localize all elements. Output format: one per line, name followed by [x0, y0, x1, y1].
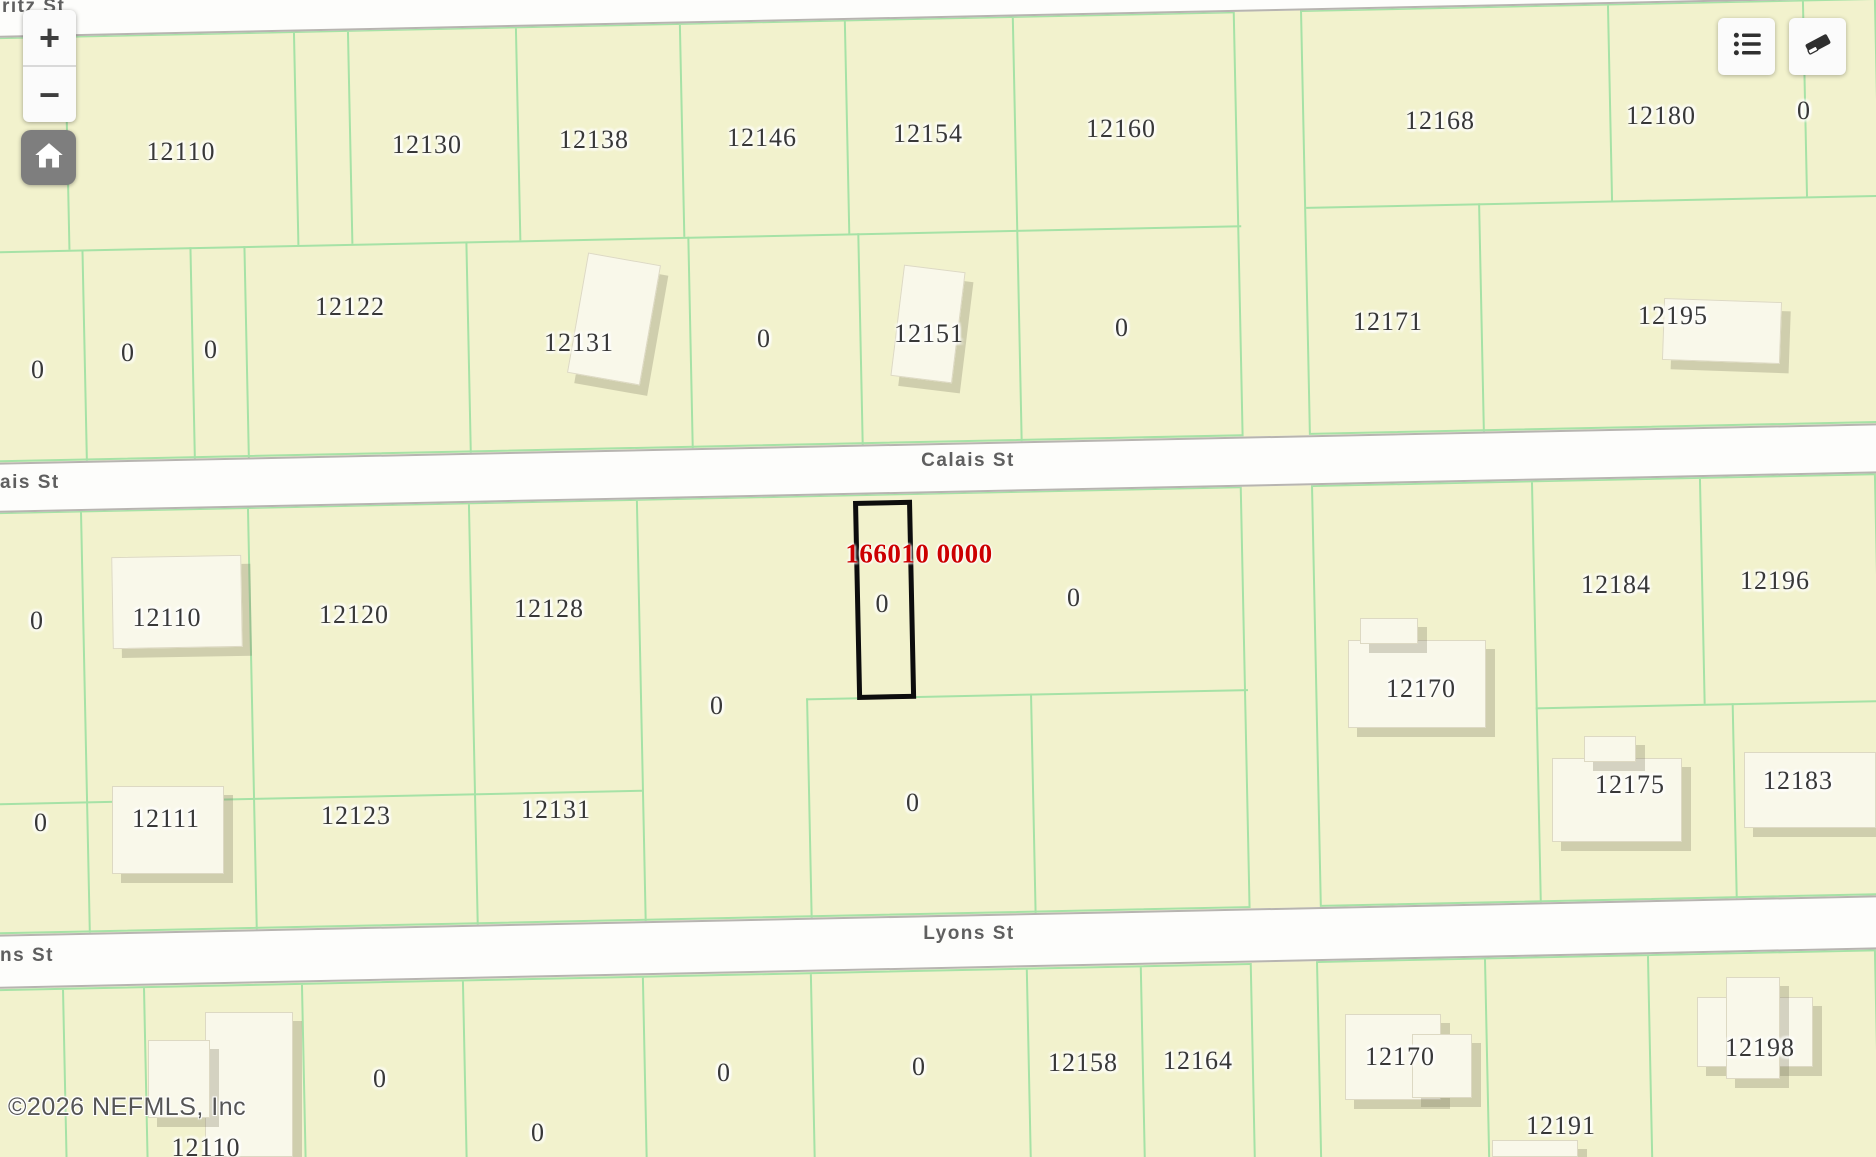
parcel-boundary-line [810, 974, 816, 1157]
parcel-boundary-line [515, 28, 521, 240]
parcel-label: 0 [757, 324, 771, 354]
parcel-label: 12184 [1581, 570, 1651, 600]
parcel-label: 12131 [544, 328, 614, 358]
parcel-label: 0 [1115, 313, 1129, 343]
parcel-label: 12110 [171, 1133, 240, 1157]
building-footprint [111, 555, 243, 649]
parcel-label: 0 [906, 788, 920, 818]
parcel-boundary-line [687, 237, 693, 450]
parcel-boundary-line [243, 246, 249, 459]
parcel-label: 0 [121, 338, 135, 368]
parcel-label: 12170 [1386, 674, 1456, 704]
list-icon [1732, 29, 1762, 64]
parcel-boundary-line [301, 985, 307, 1157]
selected-parcel-label: 0 [876, 589, 889, 619]
eraser-icon [1802, 28, 1834, 65]
building-footprint [1360, 618, 1418, 644]
street-label-lyons-partial: ns St [0, 945, 54, 967]
parcel-label: 12170 [1365, 1042, 1435, 1072]
parcel-label: 0 [31, 355, 45, 385]
parcel-label: 0 [717, 1058, 731, 1088]
parcel-label: 12154 [893, 119, 963, 149]
parcel-boundary-line [1732, 703, 1738, 900]
parcel-boundary-line [844, 21, 850, 233]
parcel-label: 12131 [521, 795, 591, 825]
parcel-boundary-line [1607, 6, 1613, 201]
selected-parcel-id: 166010 0000 [845, 539, 992, 570]
parcel-label: 12130 [392, 130, 462, 160]
parcel-label: 0 [34, 808, 48, 838]
parcel-label: 0 [30, 606, 44, 636]
parcel-label: 0 [912, 1052, 926, 1082]
parcel-boundary-line [1699, 479, 1706, 704]
parcel-boundary-line [247, 509, 258, 931]
legend-list-button[interactable] [1718, 18, 1775, 75]
parcel-boundary-line [462, 981, 468, 1157]
parcel-label: 12196 [1740, 566, 1810, 596]
parcel-boundary-line [636, 501, 647, 923]
parcel-label: 0 [710, 691, 724, 721]
parcel-boundary-line [679, 25, 685, 237]
parcel-label: 12128 [514, 594, 584, 624]
parcel-label: 0 [531, 1118, 545, 1148]
parcel-boundary-line [1140, 967, 1146, 1157]
parcel-boundary-line [293, 33, 299, 245]
zoom-out-button[interactable]: − [23, 67, 76, 122]
parcel-label: 12123 [321, 801, 391, 831]
parcel-label: 12110 [146, 137, 215, 167]
parcel-label: 12180 [1626, 101, 1696, 131]
parcel-label: 12183 [1763, 766, 1833, 796]
home-icon [34, 140, 64, 175]
parcel-boundary-line [62, 990, 68, 1157]
parcel-boundary-line [1026, 970, 1032, 1157]
parcel-boundary-line [347, 32, 353, 244]
building-footprint [1726, 977, 1780, 1079]
parcel-block [0, 11, 1244, 463]
map-canvas[interactable]: 1211012130121381214612154121601216812180… [0, 0, 1876, 1157]
parcel-label: 12110 [132, 603, 201, 633]
street-label-lyons: Lyons St [923, 923, 1015, 945]
parcel-label: 0 [1797, 96, 1811, 126]
eraser-button[interactable] [1789, 18, 1846, 75]
parcel-label: 0 [373, 1064, 387, 1094]
parcel-label: 12158 [1048, 1048, 1118, 1078]
parcel-boundary-line [1478, 203, 1485, 433]
parcel-label: 12164 [1163, 1046, 1233, 1076]
parcel-label: 12160 [1086, 114, 1156, 144]
parcel-label: 12175 [1595, 770, 1665, 800]
parcel-label: 12191 [1526, 1111, 1596, 1141]
parcel-label: 12120 [319, 600, 389, 630]
parcel-label: 12151 [894, 319, 964, 349]
parcel-boundary-line [1531, 482, 1542, 904]
parcel-boundary-line [1536, 700, 1876, 709]
parcel-boundary-line [468, 504, 479, 926]
map-attribution: ©2026 NEFMLS, Inc [8, 1093, 246, 1122]
parcel-boundary-line [81, 249, 87, 462]
street-label-calais-partial: ais St [0, 472, 60, 494]
street-label-calais: Calais St [921, 450, 1015, 472]
home-button[interactable] [21, 130, 76, 185]
building-footprint [1492, 1140, 1578, 1157]
parcel-label: 12198 [1725, 1033, 1795, 1063]
building-footprint [1584, 736, 1636, 762]
parcel-boundary-line [1484, 959, 1491, 1157]
parcel-label: 12111 [132, 804, 200, 834]
parcel-boundary-line [80, 512, 91, 934]
zoom-in-button[interactable]: + [23, 10, 76, 65]
parcel-boundary-line [642, 978, 648, 1157]
parcel-boundary-line [1647, 956, 1654, 1157]
zoom-control: + − [23, 10, 76, 122]
parcel-label: 12138 [559, 125, 629, 155]
parcel-label: 12168 [1405, 106, 1475, 136]
parcel-boundary-line [189, 247, 195, 460]
parcel-boundary-line [857, 233, 863, 446]
parcel-label: 12171 [1353, 307, 1423, 337]
parcel-boundary-line [806, 698, 813, 919]
parcel-boundary-line [1030, 694, 1037, 915]
parcel-boundary-line [1306, 195, 1876, 209]
parcel-boundary-line [465, 241, 471, 454]
parcel-label: 12195 [1638, 301, 1708, 331]
parcel-label: 12146 [727, 123, 797, 153]
parcel-label: 0 [1067, 583, 1081, 613]
parcel-label: 12122 [315, 292, 385, 322]
parcel-boundary-line [0, 225, 1241, 254]
parcel-label: 0 [204, 335, 218, 365]
